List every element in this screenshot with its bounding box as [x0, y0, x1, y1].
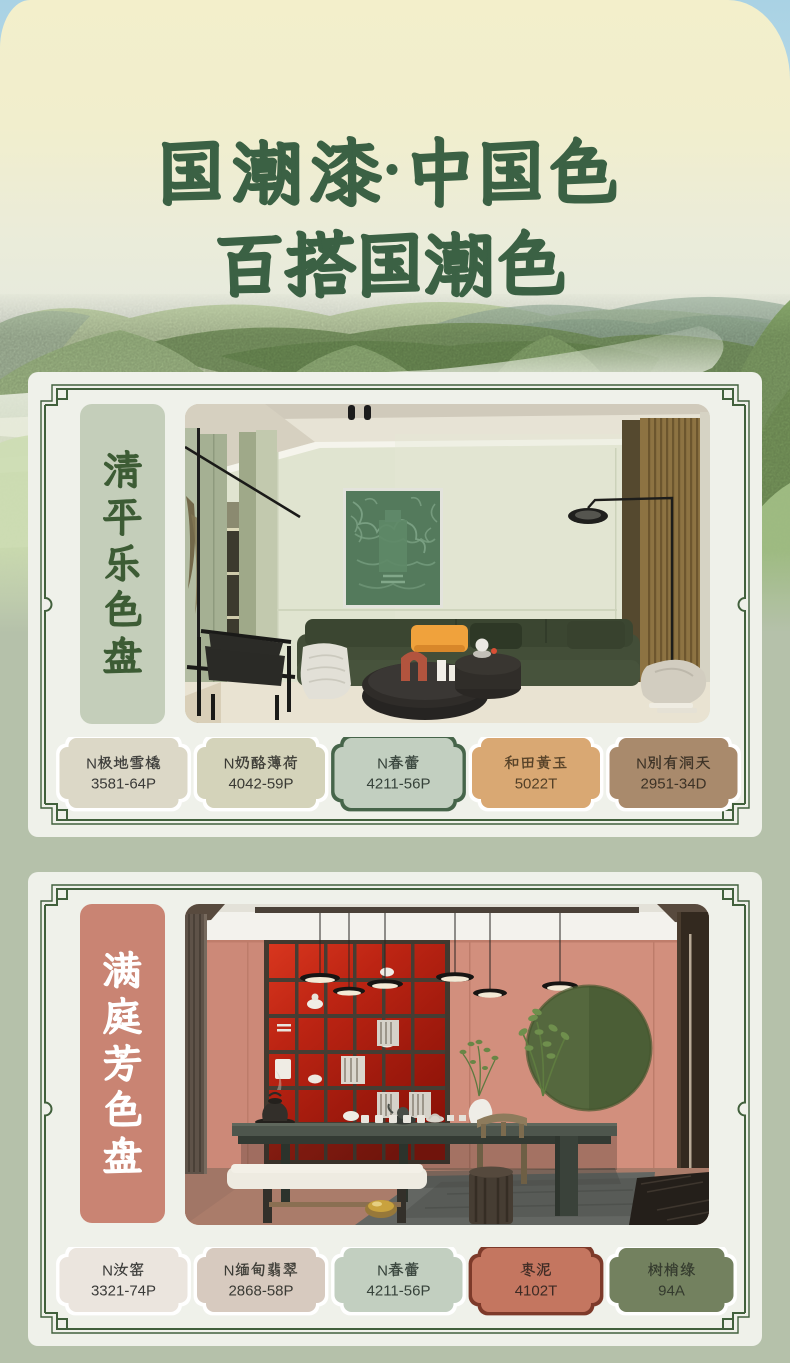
svg-text:3581-64P: 3581-64P — [91, 776, 156, 793]
svg-text:4211-56P: 4211-56P — [367, 1283, 431, 1300]
svg-text:N: N — [86, 756, 97, 773]
svg-text:4042-59P: 4042-59P — [228, 776, 293, 793]
svg-text:3321-74P: 3321-74P — [91, 1283, 156, 1300]
svg-text:5022T: 5022T — [515, 776, 558, 793]
svg-text:N: N — [377, 1263, 388, 1280]
svg-text:N: N — [636, 756, 647, 773]
svg-text:N: N — [377, 756, 388, 773]
svg-text:N: N — [102, 1263, 113, 1280]
svg-text:4211-56P: 4211-56P — [367, 776, 431, 793]
svg-text:N: N — [224, 756, 235, 773]
svg-text:94A: 94A — [658, 1283, 685, 1300]
svg-text:N: N — [224, 1263, 235, 1280]
svg-text:2868-58P: 2868-58P — [228, 1283, 293, 1300]
svg-text:4102T: 4102T — [515, 1283, 558, 1300]
svg-text:2951-34D: 2951-34D — [641, 776, 707, 793]
